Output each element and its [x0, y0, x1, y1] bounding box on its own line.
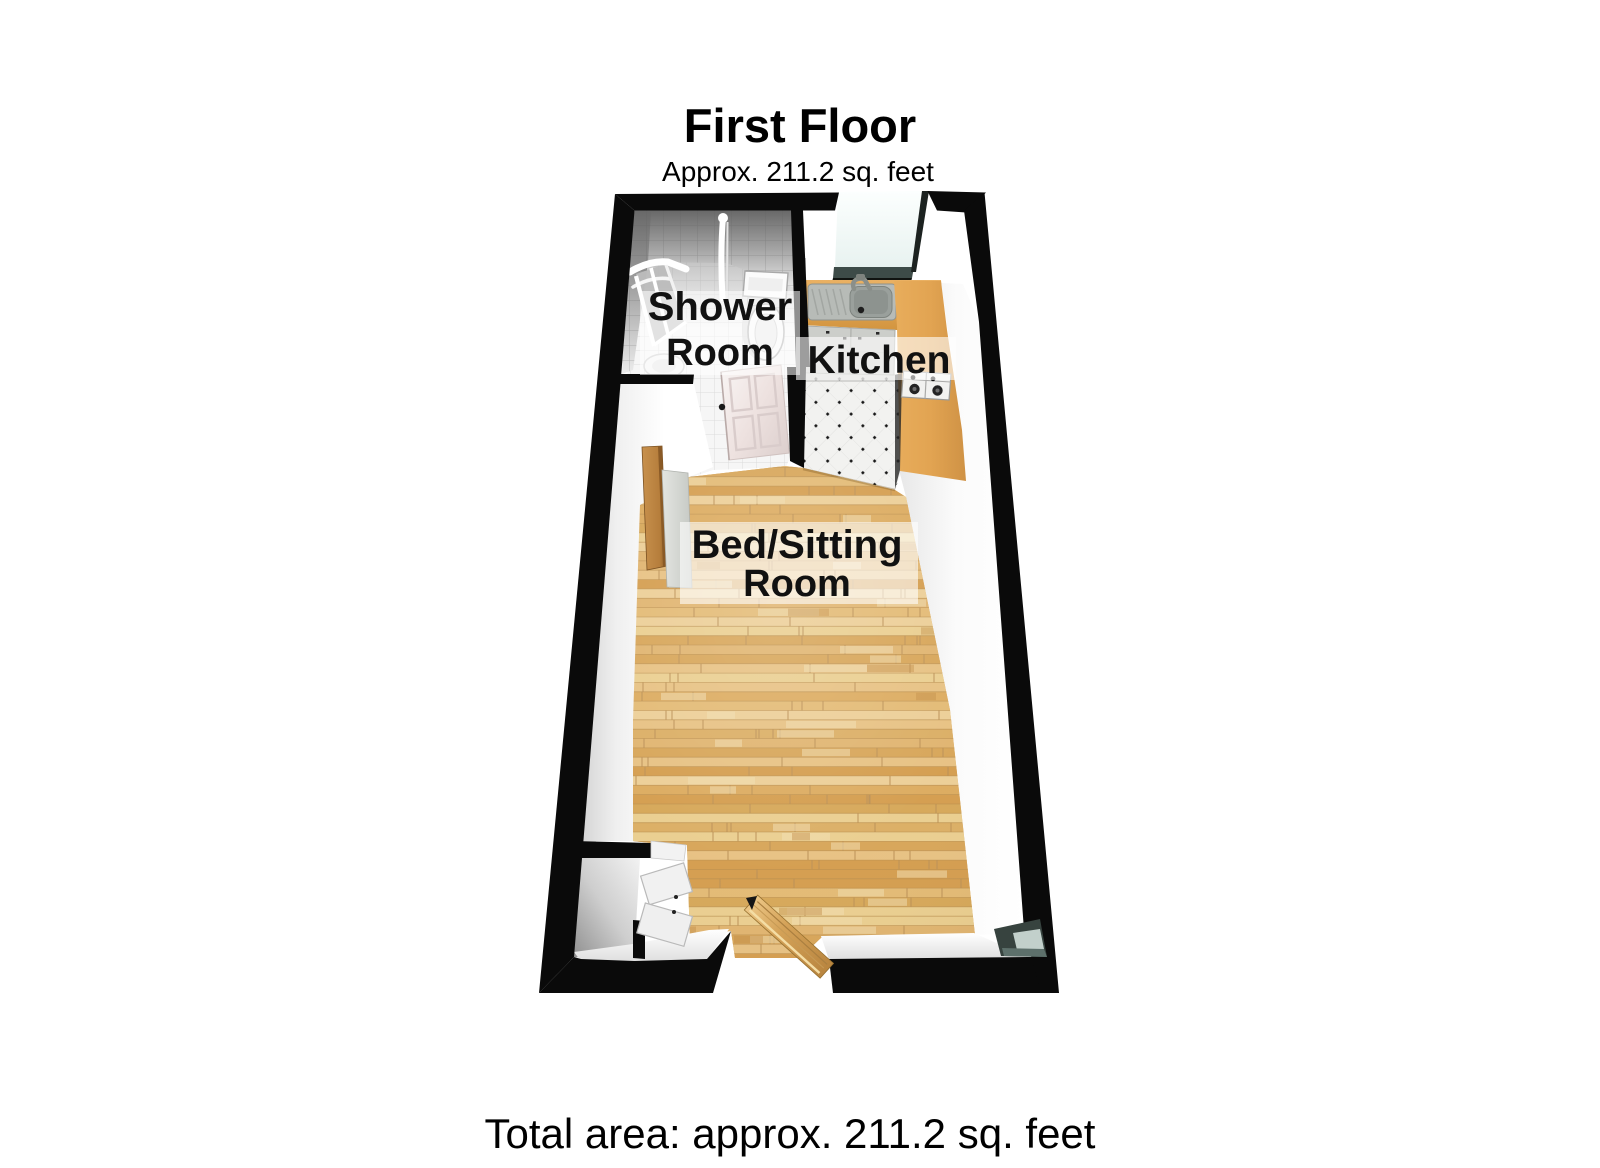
- svg-text:First Floor: First Floor: [684, 99, 916, 152]
- svg-text:Bed/Sitting: Bed/Sitting: [691, 523, 902, 567]
- svg-text:Room: Room: [743, 563, 851, 605]
- svg-text:Approx. 211.2 sq. feet: Approx. 211.2 sq. feet: [662, 156, 934, 187]
- svg-text:Room: Room: [666, 332, 774, 374]
- svg-text:Shower: Shower: [648, 285, 792, 329]
- svg-text:Kitchen: Kitchen: [807, 339, 950, 382]
- svg-text:Total area: approx. 211.2 sq.: Total area: approx. 211.2 sq. feet: [485, 1110, 1096, 1157]
